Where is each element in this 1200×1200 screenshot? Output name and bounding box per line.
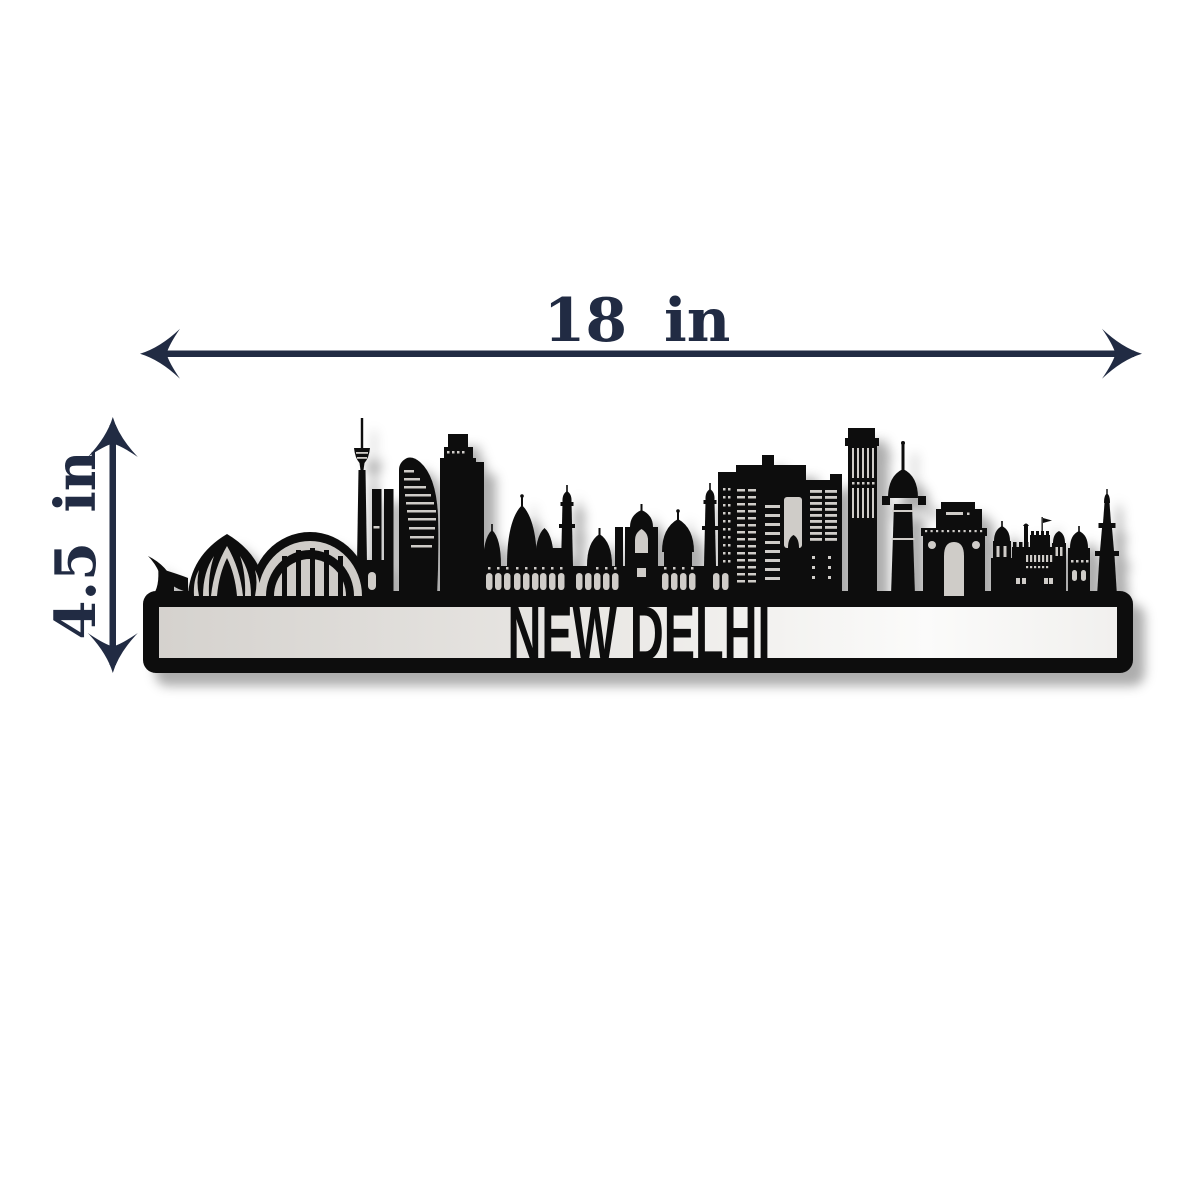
scene: 18 in 4.5 in: [0, 0, 1200, 1200]
product-dimension-diagram: 18 in 4.5 in: [0, 0, 1200, 1200]
skyline-artwork: NEW DELHI: [143, 418, 1133, 677]
height-dimension: 4.5 in: [43, 417, 138, 673]
height-dimension-label: 4.5 in: [43, 451, 109, 640]
dome-tower: [882, 441, 926, 596]
width-dimension-line: [150, 351, 1134, 358]
stepped-tower: [440, 434, 484, 596]
chhatri-pavilion: [991, 521, 1013, 596]
qutub-minar: [1095, 489, 1119, 596]
height-dimension-line: [110, 425, 117, 665]
width-dimension: 18 in: [140, 286, 1142, 379]
city-name-label: NEW DELHI: [508, 591, 771, 677]
width-dimension-label: 18 in: [544, 286, 731, 356]
